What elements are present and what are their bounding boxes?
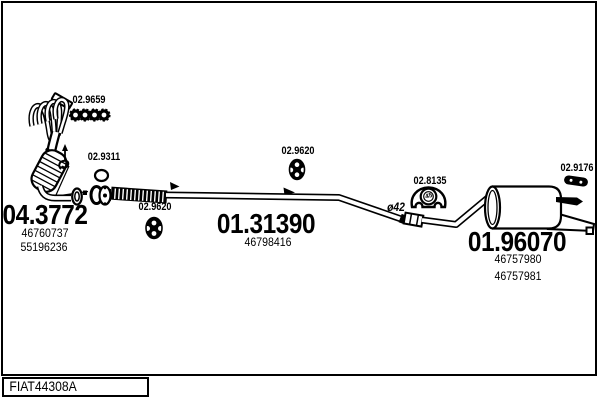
- exhaust-line-drawing: [0, 0, 600, 400]
- title-block: FIAT44308A: [2, 377, 149, 397]
- flange-joint: [91, 187, 111, 205]
- sleeve-joint: [399, 213, 424, 227]
- manifold-gasket-rings: [70, 109, 110, 120]
- title-block-code: FIAT44308A: [4, 379, 77, 395]
- catalytic-converter: [28, 146, 71, 195]
- tailpipe-end-square: [587, 228, 594, 235]
- label-mount-rear-code: 02.8135: [413, 176, 446, 187]
- label-catalyst-part-1: 46760737: [22, 227, 69, 239]
- label-silencer-part-1: 46757980: [495, 253, 542, 265]
- label-mount-rear-marking: 45: [424, 192, 433, 200]
- label-mount-mid-code: 02.9620: [281, 146, 314, 157]
- flow-arrow-front: [170, 182, 180, 190]
- label-catalyst-code: 04.3772: [2, 201, 87, 229]
- label-mount-front-code: 02.9620: [138, 202, 171, 213]
- label-centre-pipe-part: 46798416: [244, 236, 291, 248]
- label-seal-ring-code: 02.9311: [87, 152, 119, 163]
- label-gasket-set-code: 02.9659: [72, 95, 105, 106]
- gasket-square-marker: [83, 191, 87, 196]
- rubber-mount-tail-shape: [563, 175, 588, 187]
- exhaust-diagram-page: { "page": { "background": "#ffffff", "li…: [0, 0, 600, 400]
- label-centre-pipe-code: 01.31390: [217, 210, 315, 238]
- label-mount-tail-code: 02.9176: [560, 163, 593, 174]
- rubber-mount-mid-shape: [288, 160, 305, 180]
- exhaust-manifold: [31, 93, 72, 153]
- label-pipe-diameter: ø42: [387, 203, 405, 215]
- seal-ring-shape: [95, 170, 108, 181]
- label-catalyst-part-2: 55196236: [21, 241, 68, 253]
- label-silencer-part-2: 46757981: [495, 270, 542, 282]
- rubber-mount-front-shape: [145, 218, 163, 239]
